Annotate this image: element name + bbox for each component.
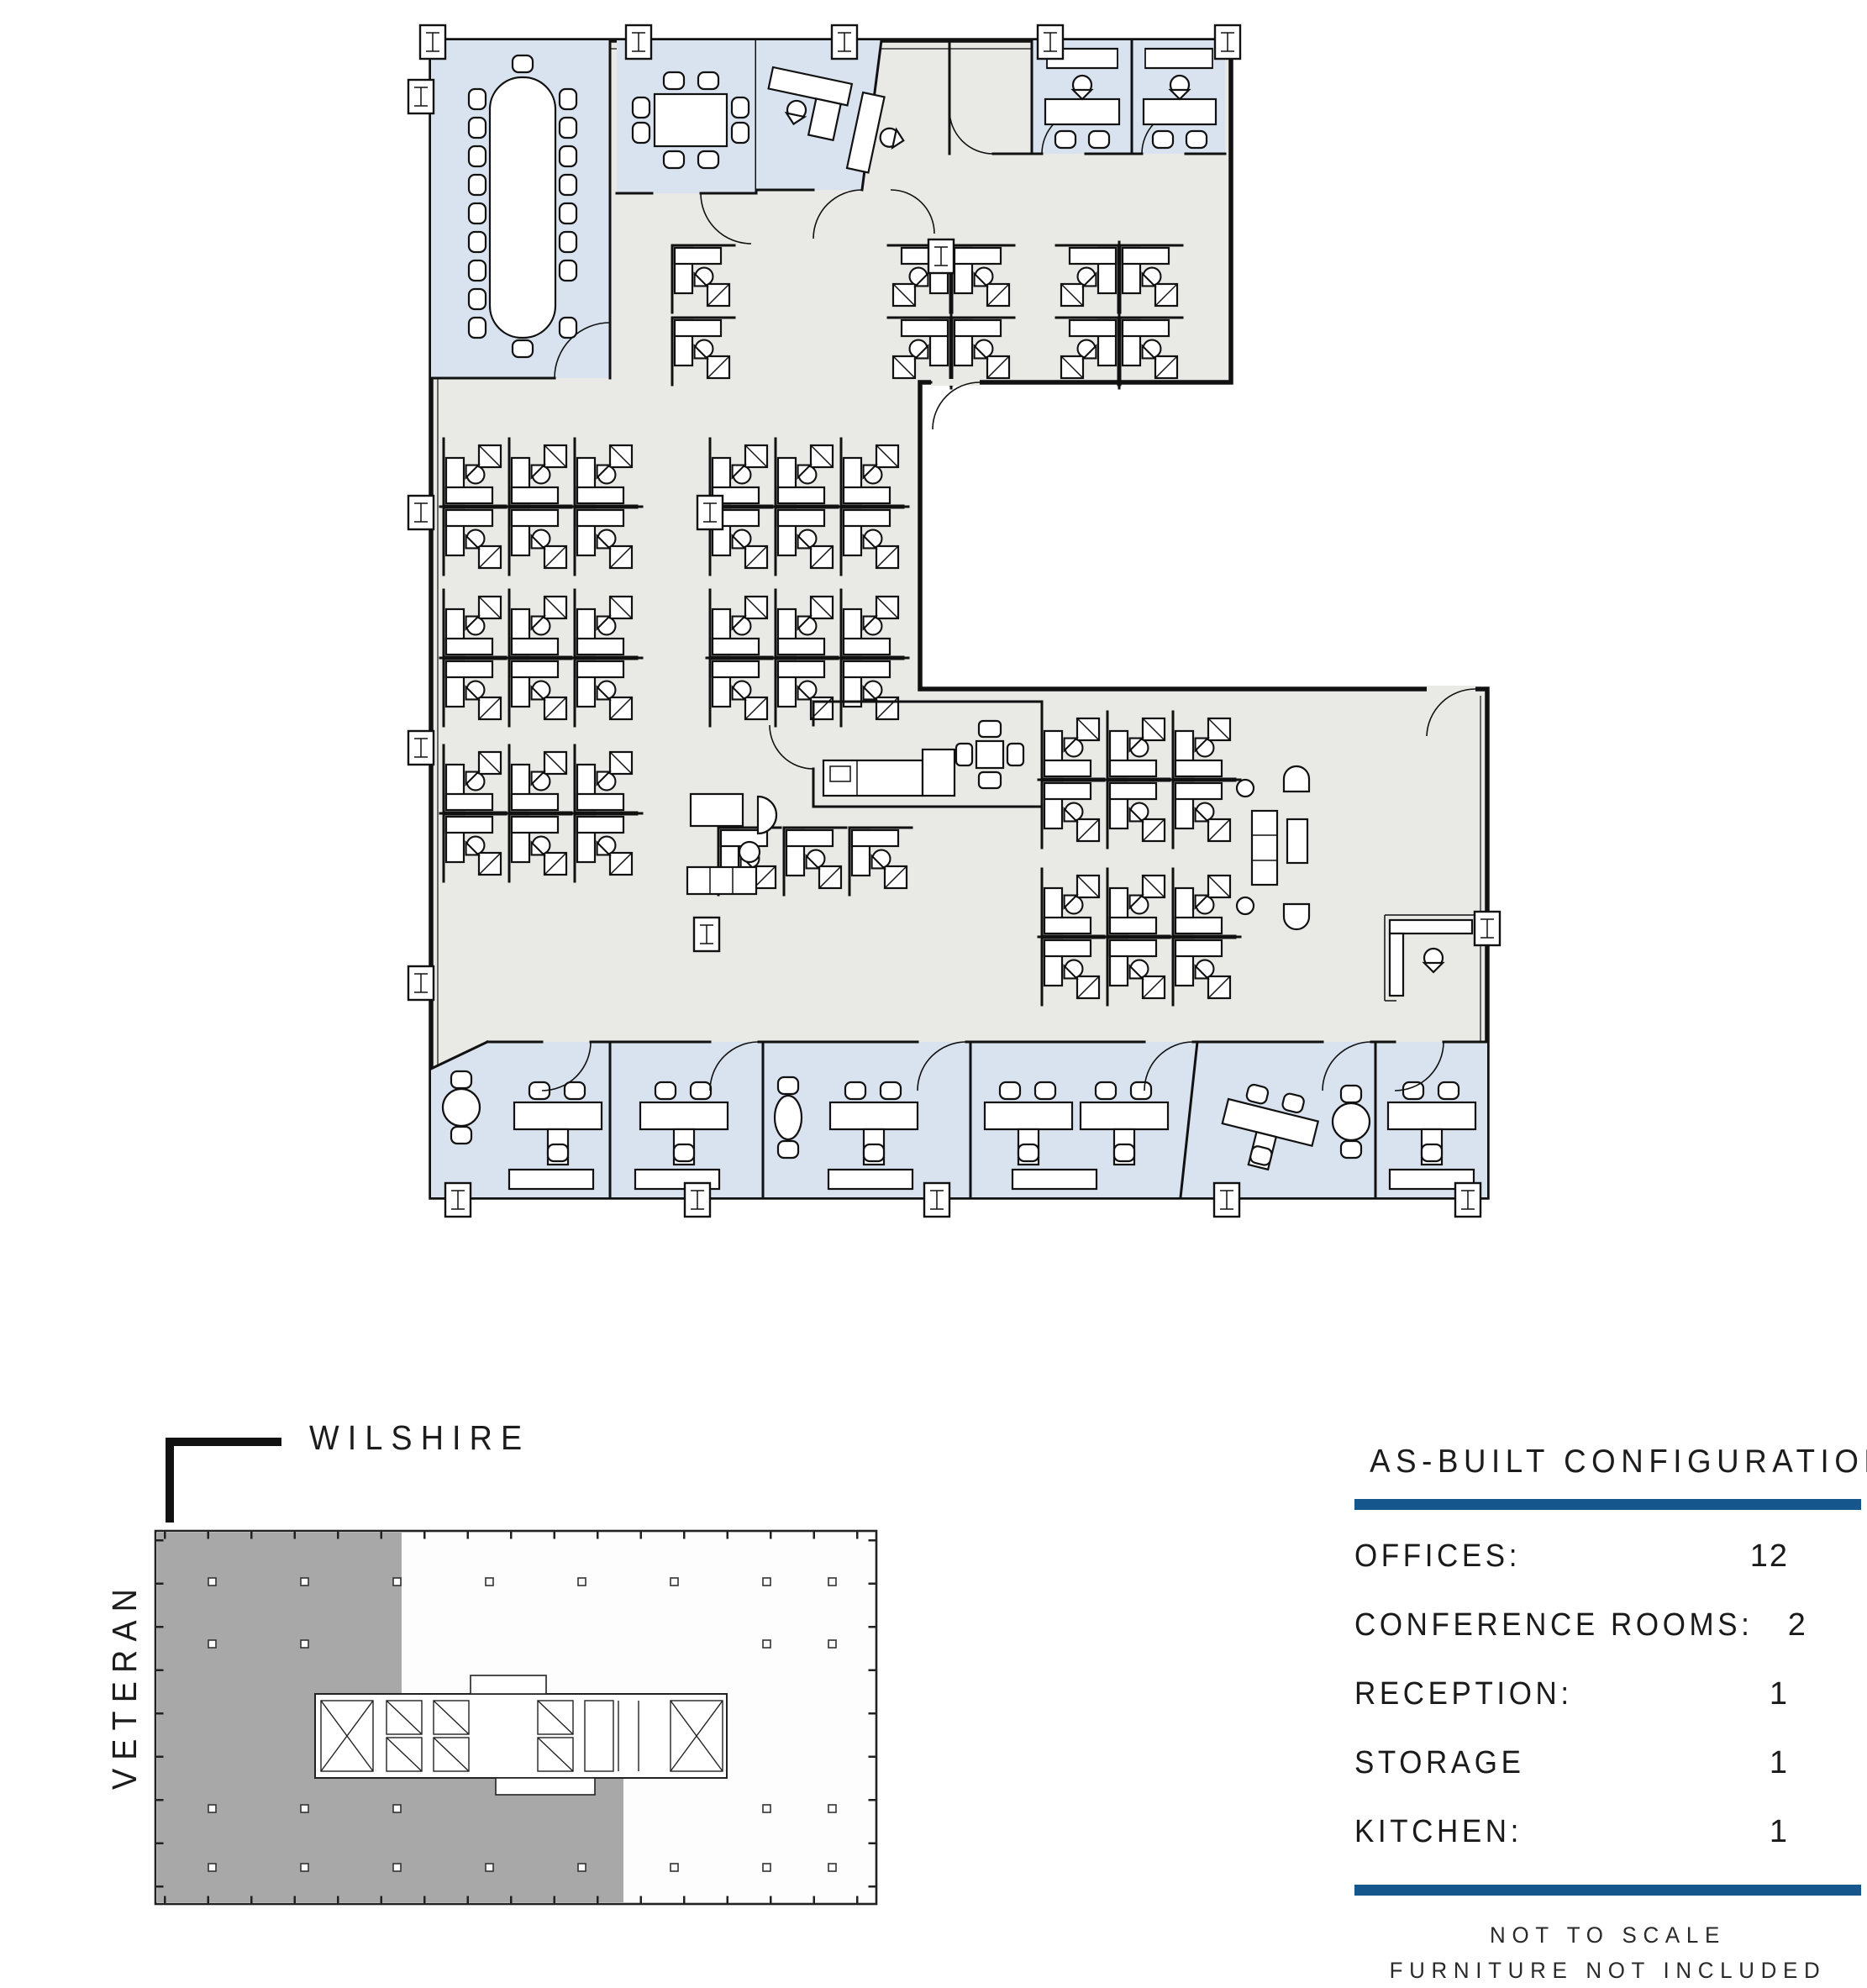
note-furniture: FURNITURE NOT INCLUDED: [1365, 1953, 1851, 1988]
note-not-to-scale: NOT TO SCALE: [1365, 1917, 1851, 1953]
panel-row-conference-rooms: CONFERENCE ROOMS: 2: [1354, 1591, 1861, 1659]
office-top-right-2: [1132, 40, 1225, 154]
panel-title: AS-BUILT CONFIGURATION: [1370, 1444, 1846, 1480]
wilshire-corner-mark: [170, 1442, 281, 1523]
office-bottom-4: [970, 1042, 1197, 1197]
row-value: 1: [1770, 1676, 1861, 1712]
main-floor-plan: [408, 25, 1500, 1217]
panel-row-kitchen: KITCHEN: 1: [1354, 1797, 1861, 1866]
office-bottom-3: [763, 1042, 970, 1197]
panel-row-reception: RECEPTION: 1: [1354, 1659, 1861, 1728]
row-label: KITCHEN:: [1354, 1814, 1523, 1850]
suite-entry-doors: [920, 379, 1475, 736]
panel-bottom-rule: [1354, 1885, 1861, 1896]
row-label: RECEPTION:: [1354, 1676, 1573, 1712]
office-bottom-right: [1375, 1042, 1487, 1197]
panel-top-rule: [1354, 1499, 1861, 1510]
street-label-wilshire: WILSHIRE: [309, 1418, 530, 1458]
as-built-configuration-panel: AS-BUILT CONFIGURATION OFFICES: 12 CONFE…: [1354, 1444, 1861, 1988]
row-label: STORAGE: [1354, 1745, 1525, 1781]
panel-row-storage: STORAGE 1: [1354, 1728, 1861, 1797]
row-value: 2: [1788, 1607, 1867, 1644]
row-value: 1: [1770, 1814, 1861, 1850]
row-label: CONFERENCE ROOMS:: [1354, 1607, 1753, 1644]
row-value: 1: [1770, 1745, 1861, 1781]
panel-rows: OFFICES: 12 CONFERENCE ROOMS: 2 RECEPTIO…: [1354, 1522, 1861, 1866]
as-built-floorplan-page: { "page": { "title": "As-Built Configura…: [0, 0, 1867, 1919]
row-value: 12: [1750, 1538, 1861, 1575]
key-plan: [155, 1442, 876, 1904]
office-bottom-angled: [1181, 1042, 1375, 1197]
conference-room-large: [431, 40, 610, 378]
street-label-veteran: VETERAN: [105, 1580, 145, 1790]
panel-notes: NOT TO SCALE FURNITURE NOT INCLUDED: [1354, 1917, 1861, 1988]
key-plan-core: [315, 1675, 727, 1795]
office-bottom-1: [431, 1042, 610, 1197]
row-label: OFFICES:: [1354, 1538, 1521, 1575]
panel-row-offices: OFFICES: 12: [1354, 1522, 1861, 1591]
office-bottom-2: [610, 1042, 763, 1197]
